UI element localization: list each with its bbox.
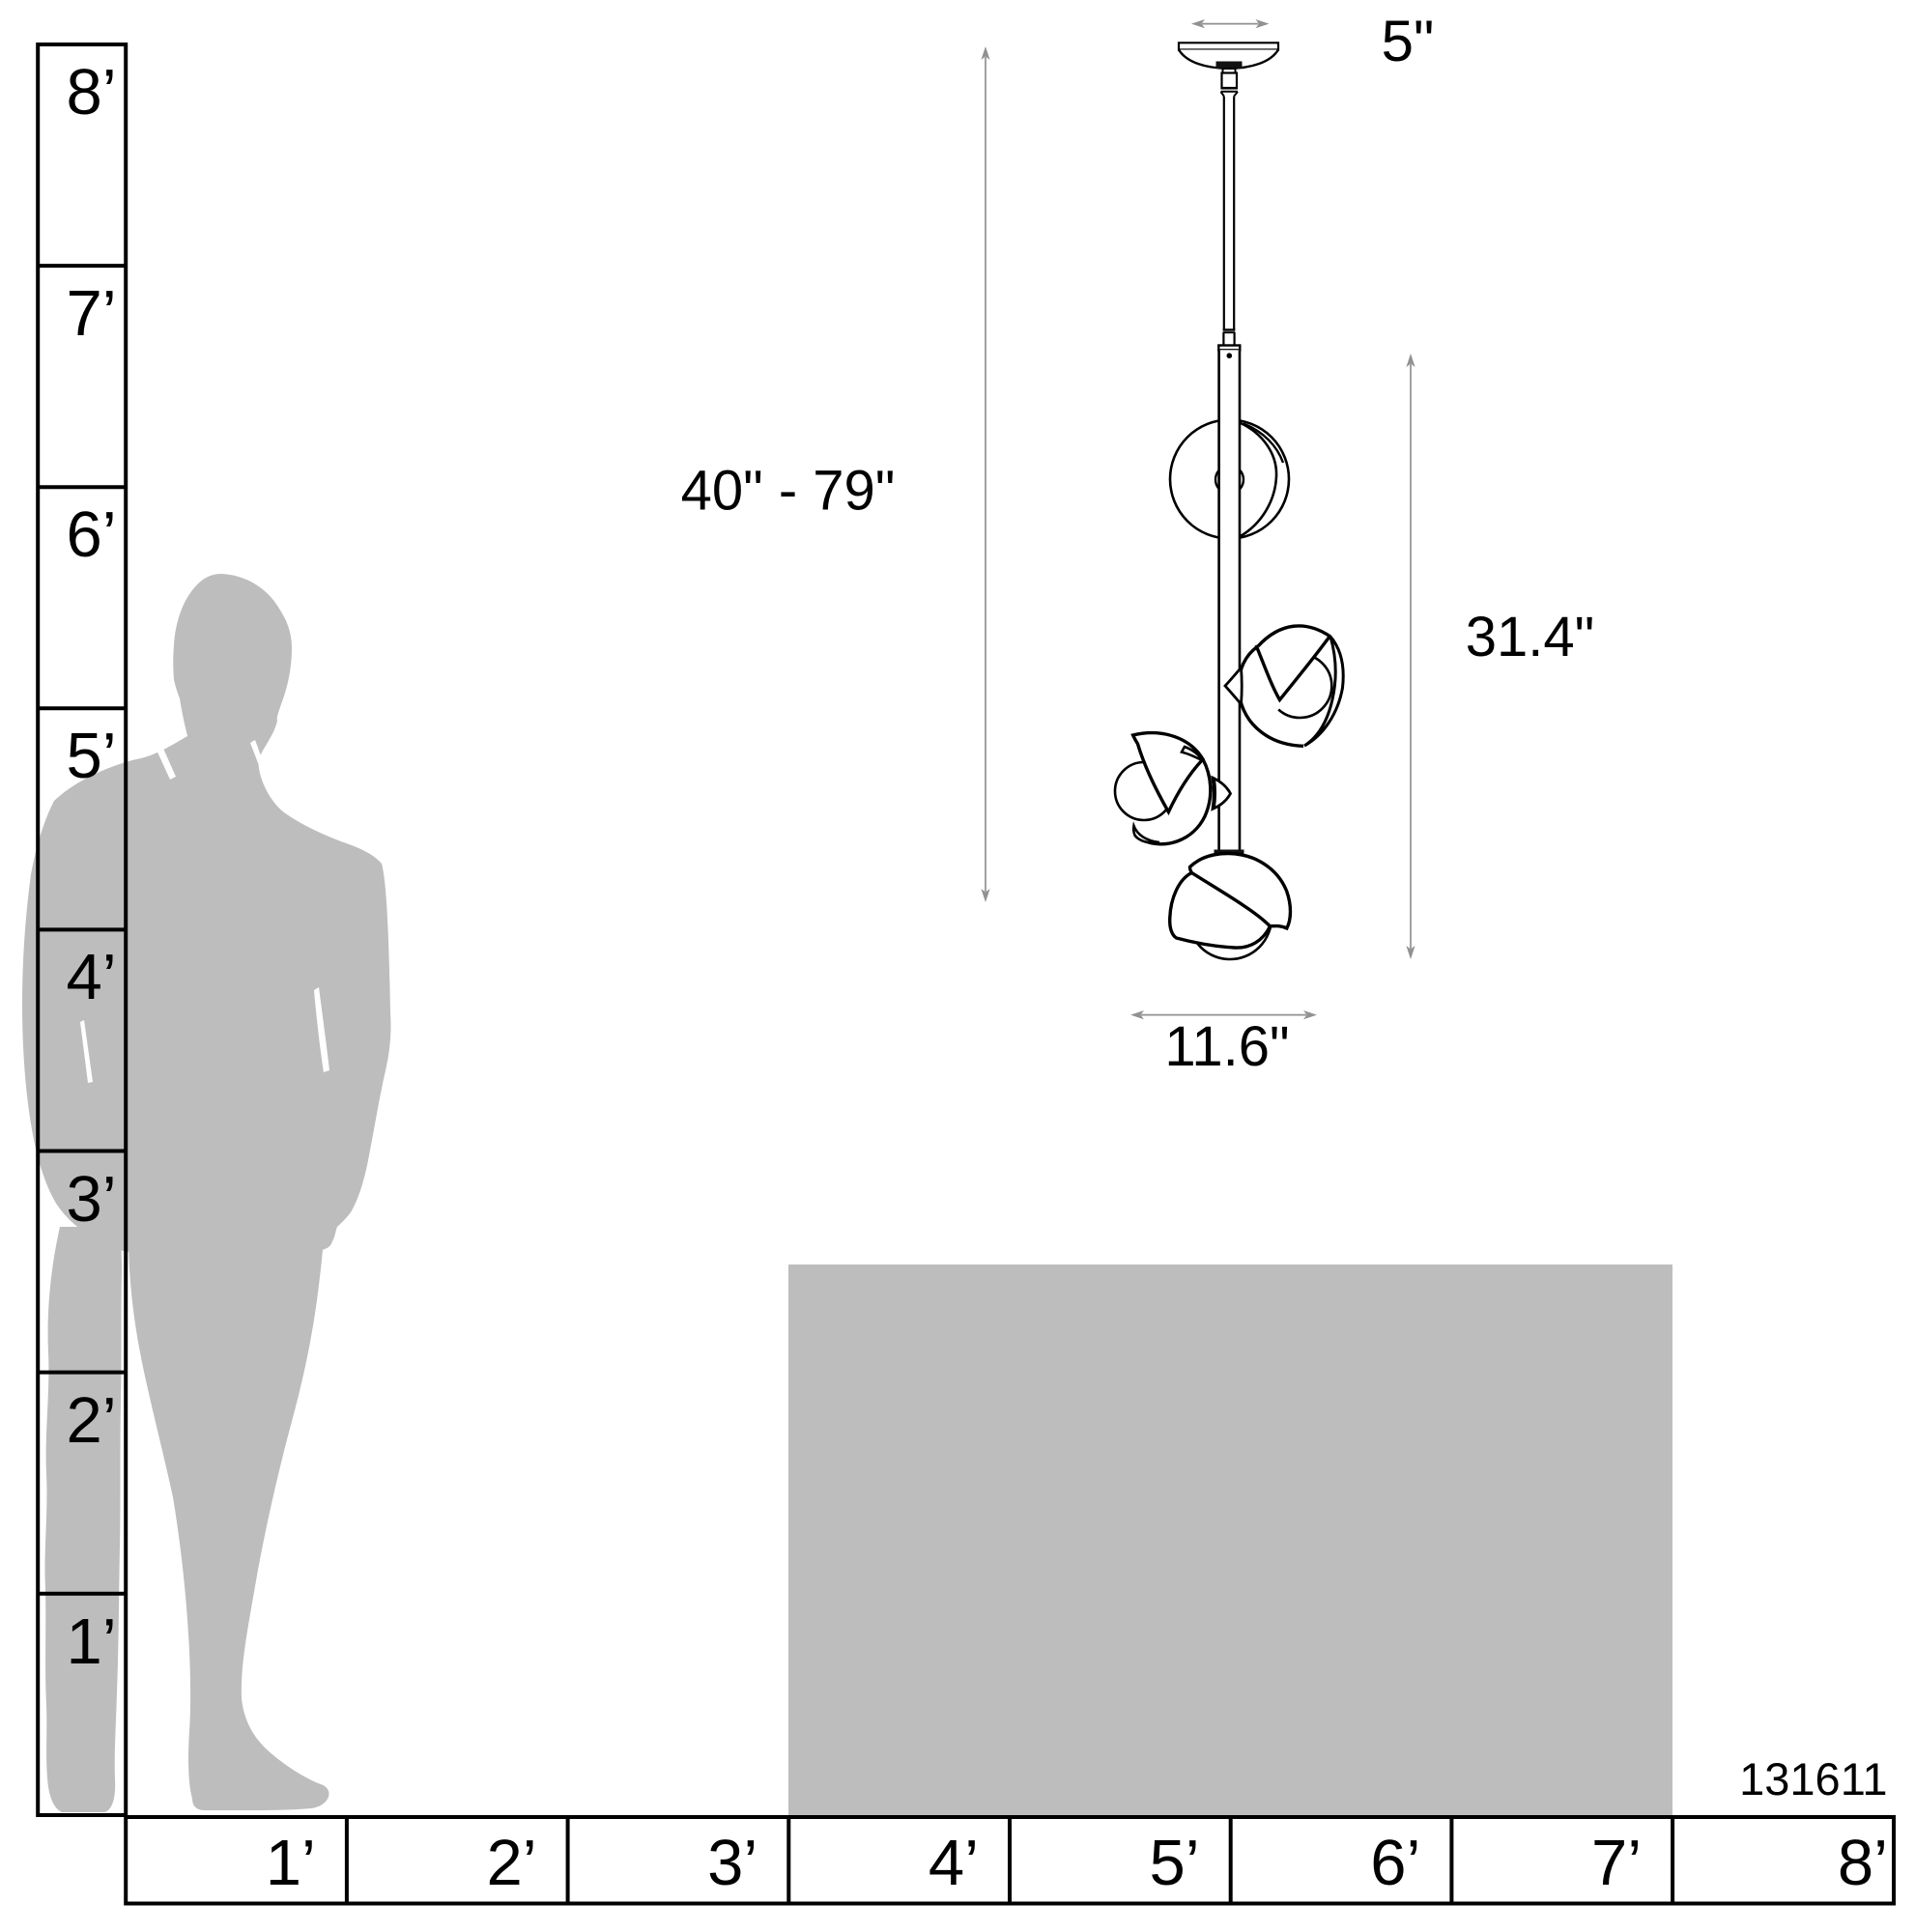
svg-text:3’: 3’ — [67, 1163, 117, 1236]
svg-text:4’: 4’ — [67, 941, 117, 1013]
svg-text:8’: 8’ — [1838, 1827, 1888, 1899]
svg-text:31.4": 31.4" — [1466, 606, 1594, 668]
svg-text:2’: 2’ — [67, 1384, 117, 1457]
svg-text:4’: 4’ — [929, 1827, 979, 1899]
svg-text:6’: 6’ — [1370, 1827, 1420, 1899]
svg-text:8’: 8’ — [67, 56, 117, 128]
svg-text:6’: 6’ — [67, 498, 117, 571]
svg-text:3’: 3’ — [707, 1827, 757, 1899]
svg-text:7’: 7’ — [1591, 1827, 1642, 1899]
svg-text:2’: 2’ — [486, 1827, 536, 1899]
svg-text:40" - 79": 40" - 79" — [681, 460, 896, 523]
svg-text:11.6": 11.6" — [1164, 1015, 1289, 1078]
svg-text:5’: 5’ — [67, 720, 117, 792]
svg-text:5’: 5’ — [1150, 1827, 1200, 1899]
svg-text:1’: 1’ — [266, 1827, 316, 1899]
svg-text:7’: 7’ — [67, 277, 117, 350]
svg-text:5": 5" — [1382, 9, 1435, 73]
svg-text:131611: 131611 — [1739, 1753, 1887, 1804]
svg-text:1’: 1’ — [67, 1605, 117, 1678]
